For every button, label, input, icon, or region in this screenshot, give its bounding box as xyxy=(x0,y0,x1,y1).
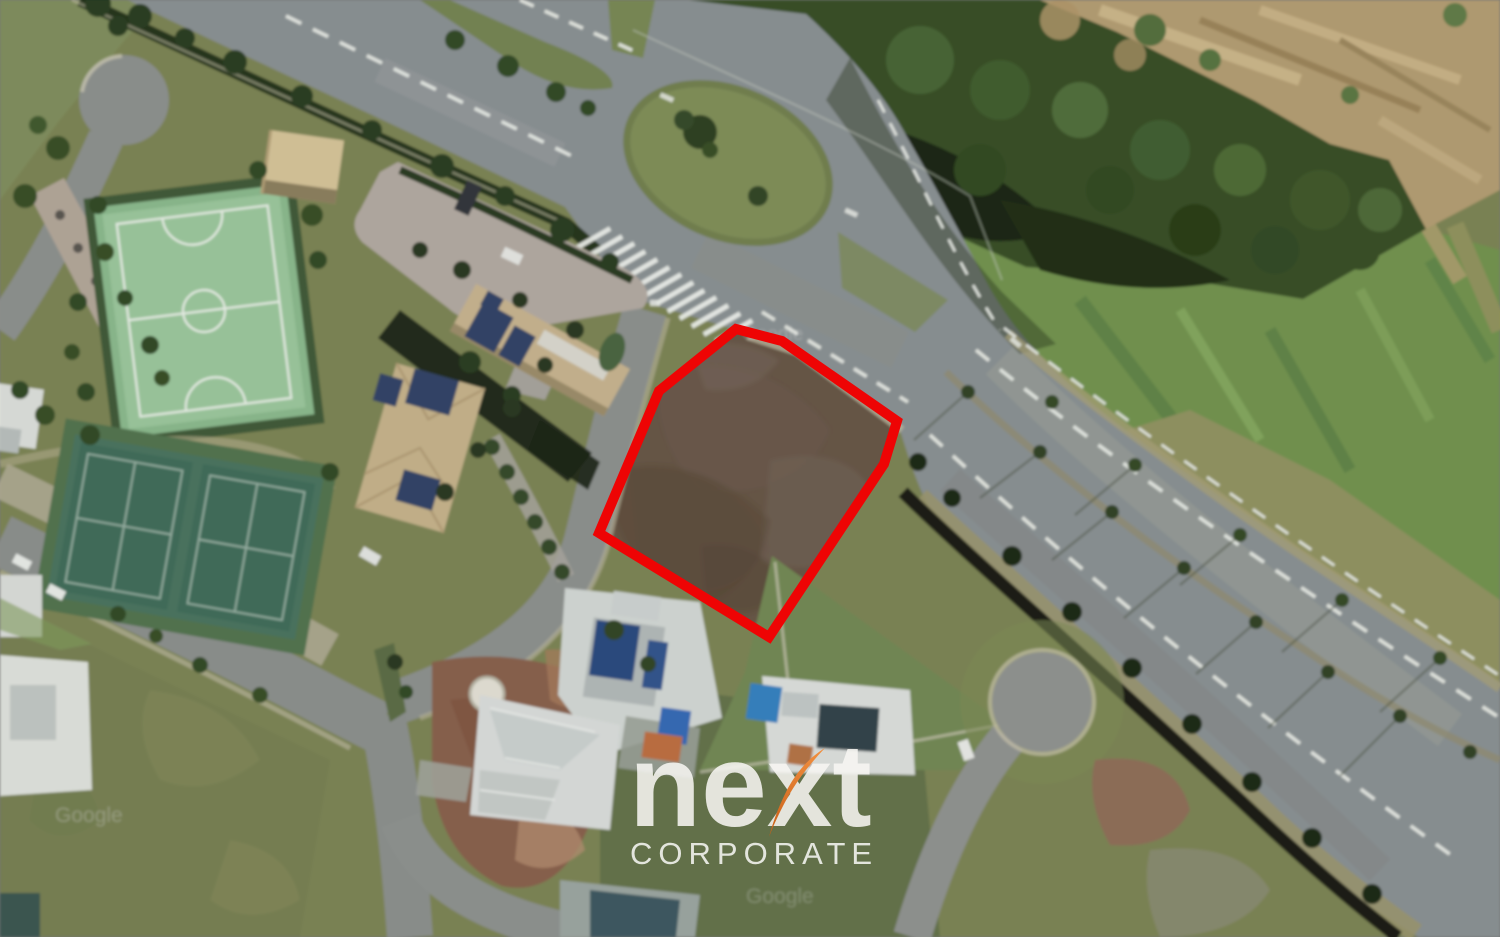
svg-text:CORPORATE: CORPORATE xyxy=(630,836,878,871)
svg-text:next: next xyxy=(629,720,872,852)
